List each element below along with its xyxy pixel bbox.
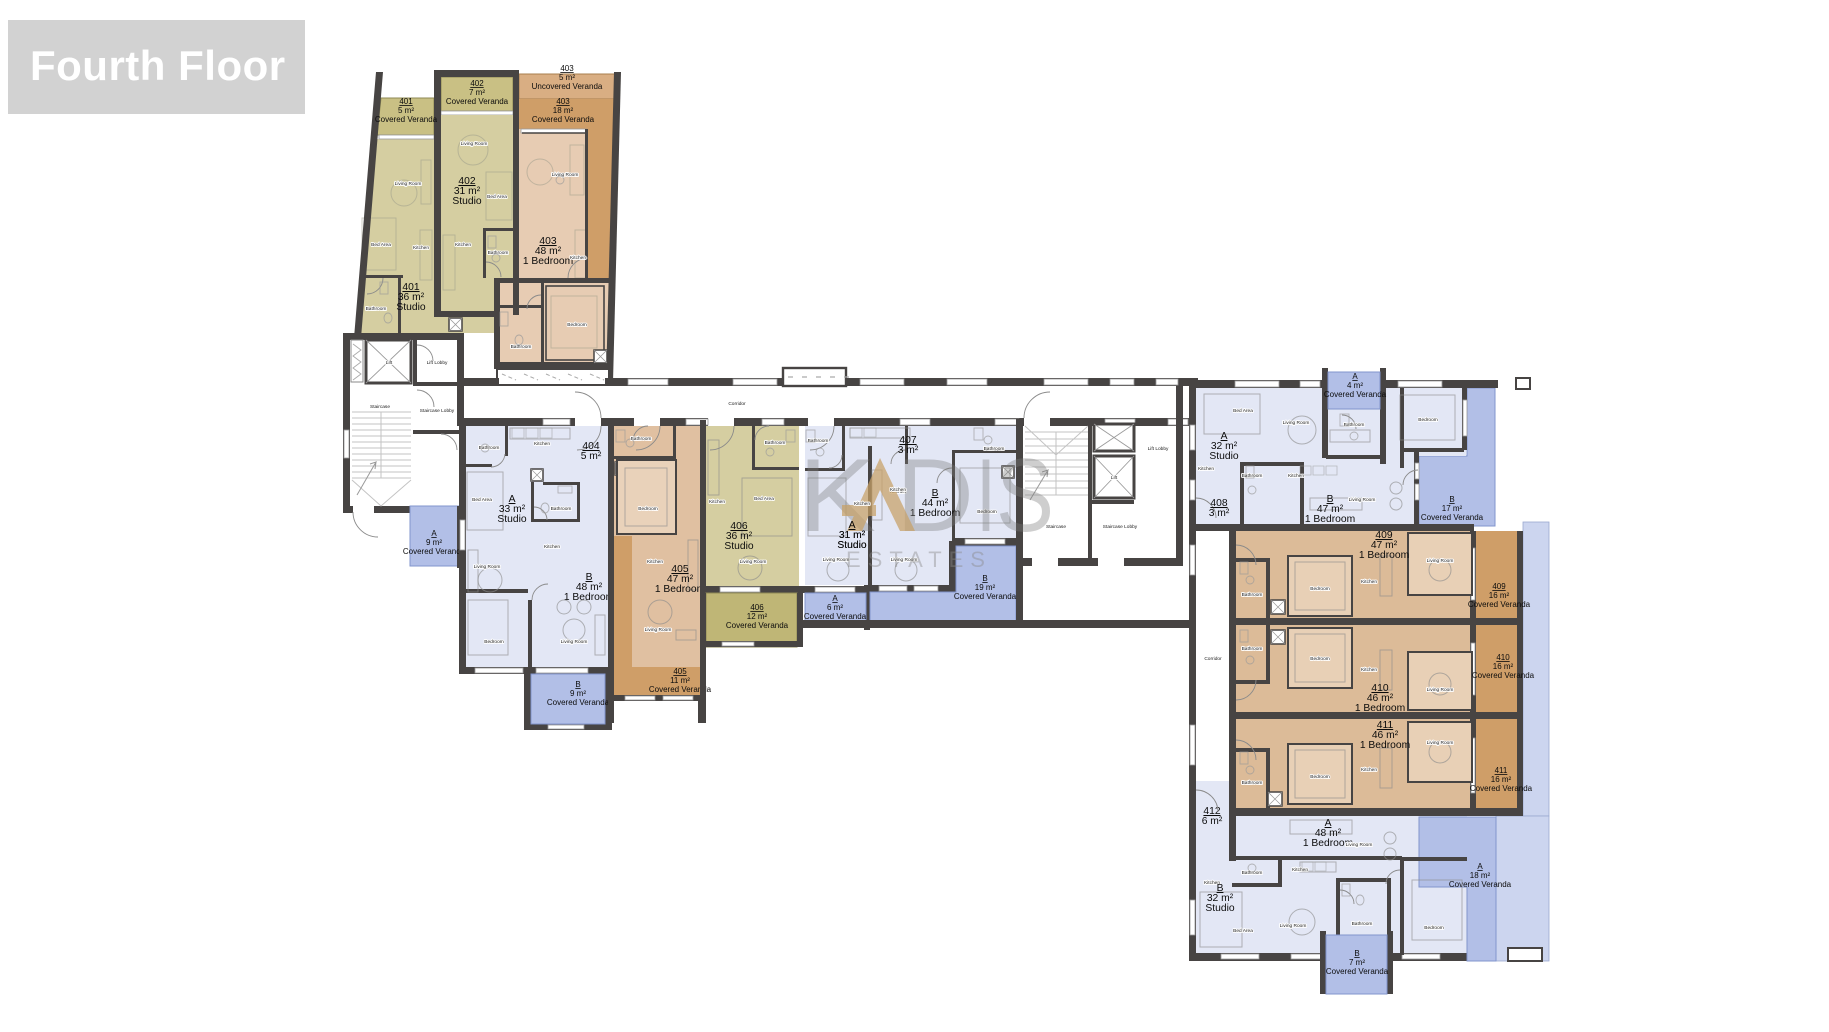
svg-text:Covered Veranda: Covered Veranda xyxy=(1449,880,1512,889)
svg-text:409: 409 xyxy=(1492,582,1506,591)
svg-text:Lift Lobby: Lift Lobby xyxy=(1148,446,1169,452)
svg-text:Fourth Floor: Fourth Floor xyxy=(30,42,286,89)
svg-text:Bed Area: Bed Area xyxy=(754,496,774,502)
svg-text:18 m²: 18 m² xyxy=(1470,871,1491,880)
svg-text:Bathroom: Bathroom xyxy=(1352,921,1373,927)
svg-text:Bedroom: Bedroom xyxy=(484,639,503,645)
svg-text:A: A xyxy=(832,594,838,603)
svg-text:B: B xyxy=(982,574,987,583)
svg-text:403: 403 xyxy=(560,64,574,73)
svg-text:Kitchen: Kitchen xyxy=(570,255,586,261)
svg-text:Studio: Studio xyxy=(396,302,425,313)
svg-text:Covered Veranda: Covered Veranda xyxy=(375,115,438,124)
svg-text:9 m²: 9 m² xyxy=(570,689,586,698)
svg-text:Bedroom: Bedroom xyxy=(638,506,657,512)
svg-text:Kitchen: Kitchen xyxy=(1361,667,1377,673)
svg-text:411: 411 xyxy=(1495,766,1508,775)
svg-text:Covered Veranda: Covered Veranda xyxy=(1326,967,1389,976)
svg-text:Studio: Studio xyxy=(452,196,481,207)
svg-text:Covered Veranda: Covered Veranda xyxy=(954,592,1017,601)
svg-text:1 Bedroom: 1 Bedroom xyxy=(523,256,573,267)
svg-text:6 m²: 6 m² xyxy=(827,603,843,612)
svg-text:Kitchen: Kitchen xyxy=(1288,473,1304,479)
svg-text:Bedroom: Bedroom xyxy=(1424,925,1443,931)
svg-text:Covered Veranda: Covered Veranda xyxy=(726,621,789,630)
svg-text:7 m²: 7 m² xyxy=(1349,958,1365,967)
svg-text:Covered Veranda: Covered Veranda xyxy=(1468,600,1531,609)
svg-text:Covered Veranda: Covered Veranda xyxy=(1472,671,1535,680)
svg-text:4 m²: 4 m² xyxy=(1347,381,1363,390)
svg-text:D: D xyxy=(896,438,974,554)
svg-text:16 m²: 16 m² xyxy=(1491,775,1512,784)
svg-text:406: 406 xyxy=(750,603,764,612)
svg-text:Bathroom: Bathroom xyxy=(1242,592,1263,598)
svg-text:Covered Veranda: Covered Veranda xyxy=(547,698,610,707)
svg-text:Studio: Studio xyxy=(1205,903,1234,914)
svg-text:5 m²: 5 m² xyxy=(559,73,575,82)
svg-text:ESTATES: ESTATES xyxy=(846,547,992,572)
svg-text:Staircase: Staircase xyxy=(370,404,390,410)
svg-text:Kitchen: Kitchen xyxy=(1198,466,1214,472)
svg-text:Bed Area: Bed Area xyxy=(472,497,492,503)
svg-text:401: 401 xyxy=(399,97,413,106)
svg-text:9 m²: 9 m² xyxy=(426,538,442,547)
svg-text:Bathroom: Bathroom xyxy=(551,506,572,512)
svg-text:Kitchen: Kitchen xyxy=(647,559,663,565)
svg-text:Corridor: Corridor xyxy=(1204,656,1222,662)
svg-text:1 Bedroom: 1 Bedroom xyxy=(1355,703,1405,714)
svg-text:405: 405 xyxy=(673,667,687,676)
svg-text:1 Bedroom: 1 Bedroom xyxy=(1360,740,1410,751)
svg-text:Bedroom: Bedroom xyxy=(1310,656,1329,662)
svg-text:Covered Veranda: Covered Veranda xyxy=(1324,390,1387,399)
svg-text:Kitchen: Kitchen xyxy=(890,487,906,493)
svg-text:Staircase Lobby: Staircase Lobby xyxy=(1103,524,1138,530)
svg-text:Covered Veranda: Covered Veranda xyxy=(532,115,595,124)
svg-text:1 Bedroom: 1 Bedroom xyxy=(564,592,614,603)
svg-text:Bed Area: Bed Area xyxy=(1233,408,1253,414)
svg-text:16 m²: 16 m² xyxy=(1489,591,1510,600)
svg-text:Living Room: Living Room xyxy=(1283,420,1310,426)
svg-text:A: A xyxy=(1477,862,1483,871)
svg-text:18 m²: 18 m² xyxy=(553,106,574,115)
svg-text:Kitchen: Kitchen xyxy=(544,544,560,550)
svg-text:Covered Veranda: Covered Veranda xyxy=(804,612,867,621)
svg-text:12 m²: 12 m² xyxy=(747,612,768,621)
svg-text:403: 403 xyxy=(556,97,570,106)
svg-text:Covered Veranda: Covered Veranda xyxy=(446,97,509,106)
svg-text:Uncovered Veranda: Uncovered Veranda xyxy=(532,82,603,91)
svg-text:Bed Area: Bed Area xyxy=(1233,928,1253,934)
svg-text:Bedroom: Bedroom xyxy=(567,322,586,328)
svg-text:Studio: Studio xyxy=(497,514,526,525)
svg-text:Covered Veranda: Covered Veranda xyxy=(1421,513,1484,522)
svg-text:1 Bedroom: 1 Bedroom xyxy=(655,584,705,595)
svg-text:6 m²: 6 m² xyxy=(1202,816,1223,827)
svg-text:Bathroom: Bathroom xyxy=(366,306,387,312)
svg-text:1 Bedroom: 1 Bedroom xyxy=(1305,514,1355,525)
svg-text:11 m²: 11 m² xyxy=(670,676,690,685)
svg-text:Bedroom: Bedroom xyxy=(1310,586,1329,592)
svg-text:Covered Veranda: Covered Veranda xyxy=(403,547,466,556)
svg-text:Living Room: Living Room xyxy=(740,559,767,565)
svg-text:Kitchen: Kitchen xyxy=(1361,767,1377,773)
svg-text:Living Room: Living Room xyxy=(474,564,501,570)
svg-text:A: A xyxy=(431,529,437,538)
svg-text:Bathroom: Bathroom xyxy=(1242,870,1263,876)
svg-text:Living Room: Living Room xyxy=(645,627,672,633)
svg-text:B: B xyxy=(575,680,580,689)
svg-text:Lift Lobby: Lift Lobby xyxy=(427,360,448,366)
svg-text:Lift: Lift xyxy=(386,360,393,366)
svg-text:Bedroom: Bedroom xyxy=(1310,774,1329,780)
svg-text:Kitchen: Kitchen xyxy=(1361,579,1377,585)
svg-text:Kitchen: Kitchen xyxy=(455,242,471,248)
svg-text:B: B xyxy=(1354,949,1359,958)
svg-text:17 m²: 17 m² xyxy=(1442,504,1463,513)
svg-text:Bathroom: Bathroom xyxy=(1242,646,1263,652)
svg-text:Living Room: Living Room xyxy=(561,639,588,645)
svg-text:Bathroom: Bathroom xyxy=(1344,422,1365,428)
svg-text:Living Room: Living Room xyxy=(1349,497,1376,503)
svg-text:Kitchen: Kitchen xyxy=(709,499,725,505)
svg-text:Living Room: Living Room xyxy=(1280,923,1307,929)
svg-text:Kitchen: Kitchen xyxy=(854,501,870,507)
svg-text:Bathroom: Bathroom xyxy=(488,250,509,256)
svg-text:Living Room: Living Room xyxy=(552,172,579,178)
svg-text:I: I xyxy=(976,438,996,554)
svg-text:Kitchen: Kitchen xyxy=(413,245,429,251)
svg-text:Living Room: Living Room xyxy=(1427,558,1454,564)
svg-text:Living Room: Living Room xyxy=(1427,687,1454,693)
svg-text:Living Room: Living Room xyxy=(1427,740,1454,746)
svg-text:Staircase Lobby: Staircase Lobby xyxy=(420,408,455,414)
svg-text:Bed Area: Bed Area xyxy=(371,242,391,248)
svg-text:402: 402 xyxy=(470,79,484,88)
svg-text:Studio: Studio xyxy=(724,541,753,552)
svg-text:Living Room: Living Room xyxy=(1346,842,1373,848)
svg-text:Bathroom: Bathroom xyxy=(511,344,532,350)
svg-text:Kitchen: Kitchen xyxy=(1292,867,1308,873)
svg-text:Lift: Lift xyxy=(1111,475,1118,481)
svg-text:S: S xyxy=(996,438,1054,554)
svg-text:Studio: Studio xyxy=(1209,451,1238,462)
svg-text:B: B xyxy=(1449,495,1454,504)
svg-text:19 m²: 19 m² xyxy=(975,583,996,592)
svg-text:Kitchen: Kitchen xyxy=(534,441,550,447)
svg-text:16 m²: 16 m² xyxy=(1493,662,1514,671)
svg-text:5 m²: 5 m² xyxy=(581,451,602,462)
svg-text:7 m²: 7 m² xyxy=(469,88,485,97)
svg-text:1 Bedroom: 1 Bedroom xyxy=(1359,550,1409,561)
svg-text:Covered Veranda: Covered Veranda xyxy=(1470,784,1533,793)
svg-text:3 m²: 3 m² xyxy=(1209,508,1230,519)
svg-text:A: A xyxy=(1352,372,1358,381)
svg-text:410: 410 xyxy=(1496,653,1510,662)
svg-text:Living Room: Living Room xyxy=(395,181,422,187)
svg-text:Bathroom: Bathroom xyxy=(1242,780,1263,786)
svg-text:5 m²: 5 m² xyxy=(398,106,414,115)
svg-text:Corridor: Corridor xyxy=(728,401,746,407)
svg-text:Bed Area: Bed Area xyxy=(487,194,507,200)
svg-text:Bedroom: Bedroom xyxy=(1418,417,1437,423)
svg-text:Bathroom: Bathroom xyxy=(765,440,786,446)
svg-text:Living Room: Living Room xyxy=(461,141,488,147)
